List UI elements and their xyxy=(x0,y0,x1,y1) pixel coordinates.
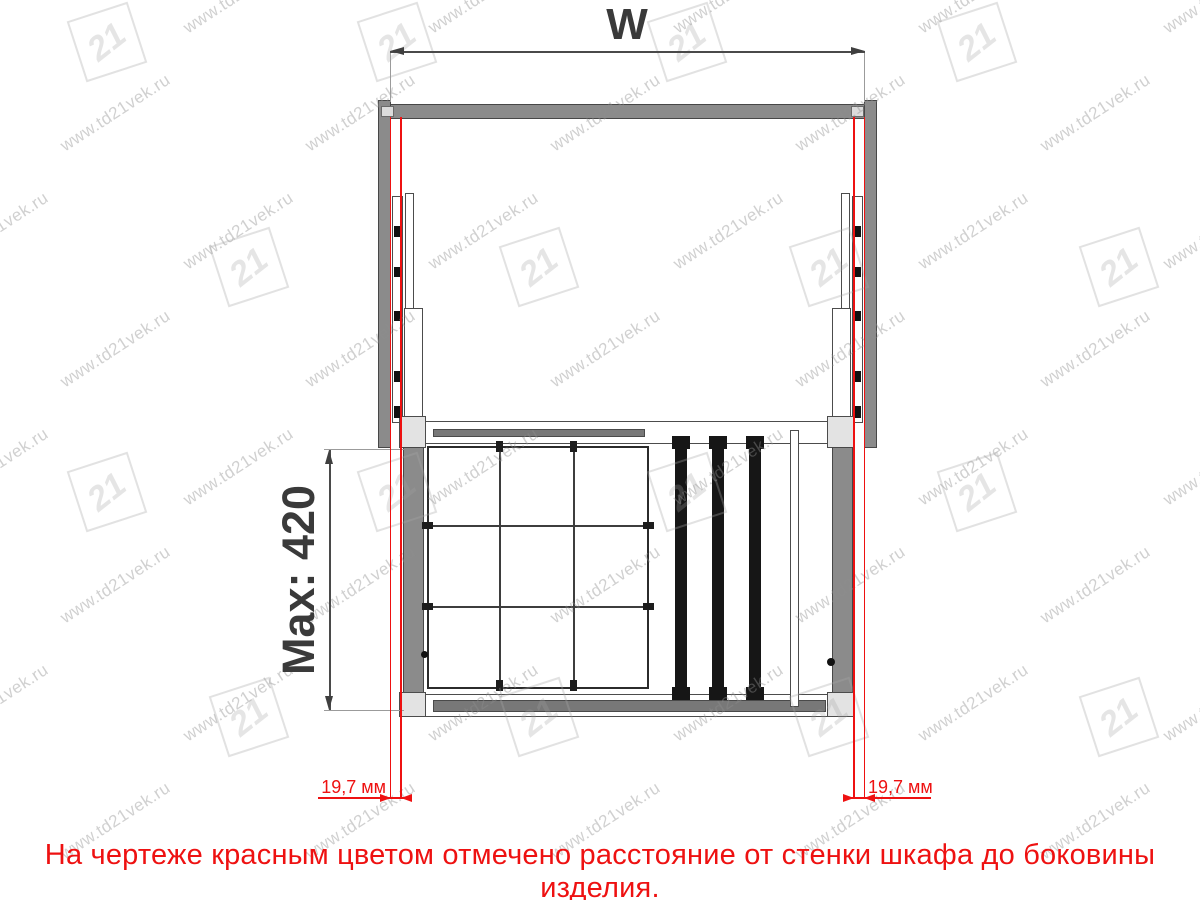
watermark-text: www.td21vek.ru xyxy=(670,188,787,274)
hanger-bar-2-bottom-cap xyxy=(709,687,727,700)
depth-dim-arrow-top xyxy=(325,450,333,464)
left-slide-inner-rail xyxy=(405,193,414,309)
watermark-text: www.td21vek.ru xyxy=(180,188,297,274)
basket-grid-hline xyxy=(429,525,647,527)
width-extension-line-left xyxy=(390,52,391,102)
basket-frame xyxy=(427,446,649,689)
cabinet-right-wall xyxy=(864,100,877,448)
right-panel-top-cap xyxy=(827,416,854,448)
watermark-text: www.td21vek.ru xyxy=(1160,0,1200,38)
width-extension-line-right xyxy=(864,52,865,102)
frame-back-rail-bar xyxy=(433,429,645,437)
right-slide-clip xyxy=(854,371,861,382)
hanger-bar-1-bottom-cap xyxy=(672,687,690,700)
basket-grid-vline xyxy=(499,448,501,687)
watermark-logo: 21 xyxy=(937,452,1018,533)
watermark-logo: 21 xyxy=(789,677,870,758)
clearance-line-left-inner xyxy=(400,117,402,799)
watermark-text: www.td21vek.ru xyxy=(57,542,174,628)
watermark-text: www.td21vek.ru xyxy=(0,660,52,746)
frame-front-rail-bar xyxy=(433,700,826,712)
note-text: На чертеже красным цветом отмечено расст… xyxy=(0,839,1200,900)
right-slide-clip xyxy=(854,226,861,237)
watermark-logo: 21 xyxy=(209,227,290,308)
watermark-text: www.td21vek.ru xyxy=(57,70,174,156)
watermark-logo: 21 xyxy=(1079,227,1160,308)
watermark-text: www.td21vek.ru xyxy=(0,424,52,510)
watermark-logo: 21 xyxy=(67,2,148,83)
watermark-logo: 21 xyxy=(499,227,580,308)
basket-wire-nub xyxy=(422,603,433,610)
basket-wire-nub xyxy=(570,441,577,452)
width-dim-arrow-left xyxy=(390,47,404,55)
basket-wire-nub xyxy=(422,522,433,529)
right-slide-clip xyxy=(854,311,861,321)
depth-extension-line-top xyxy=(324,449,404,450)
hanger-bar-1 xyxy=(675,436,687,700)
clearance-line-left-outer xyxy=(390,117,392,799)
watermark-text: www.td21vek.ru xyxy=(915,660,1032,746)
right-panel-bottom-cap xyxy=(827,692,854,717)
watermark-logo: 21 xyxy=(937,2,1018,83)
cabinet-corner-notch-left xyxy=(381,106,394,117)
right-slide-clip xyxy=(854,267,861,277)
left-panel-pin xyxy=(421,651,428,658)
watermark-text: www.td21vek.ru xyxy=(915,424,1032,510)
watermark-text: www.td21vek.ru xyxy=(1160,188,1200,274)
watermark-text: www.td21vek.ru xyxy=(915,0,1032,38)
hanger-bar-2-top-cap xyxy=(709,436,727,449)
cabinet-back-wall xyxy=(378,104,877,119)
watermark-text: www.td21vek.ru xyxy=(0,188,52,274)
watermark-text: www.td21vek.ru xyxy=(547,306,664,392)
basket-wire-nub xyxy=(496,680,503,691)
basket-grid-vline xyxy=(573,448,575,687)
width-dimension-line xyxy=(390,51,865,53)
width-dimension-label: W xyxy=(557,0,697,50)
divider-rod xyxy=(790,430,799,707)
watermark-text: www.td21vek.ru xyxy=(1037,542,1154,628)
right-slide-inner-rail xyxy=(841,193,850,309)
basket-wire-nub xyxy=(643,603,654,610)
clearance-line-right-inner xyxy=(853,117,855,799)
left-slide-bracket xyxy=(404,308,423,421)
basket-wire-nub xyxy=(496,441,503,452)
watermark-logo: 21 xyxy=(209,677,290,758)
clearance-label-left: 19,7 мм xyxy=(300,777,386,798)
depth-extension-line-bottom xyxy=(324,710,404,711)
hanger-bar-2 xyxy=(712,436,724,700)
technical-drawing-page: www.td21vek.ruwww.td21vek.ruwww.td21vek.… xyxy=(0,0,1200,900)
watermark-text: www.td21vek.ru xyxy=(915,188,1032,274)
watermark-text: www.td21vek.ru xyxy=(1037,306,1154,392)
depth-dimension-label: Max: 420 xyxy=(273,485,325,675)
left-panel-top-cap xyxy=(399,416,426,448)
left-panel-bottom-cap xyxy=(399,692,426,717)
clearance-arrow-right-a xyxy=(843,794,854,802)
right-slide-bracket xyxy=(832,308,851,421)
watermark-text: www.td21vek.ru xyxy=(1160,424,1200,510)
clearance-line-right-outer xyxy=(864,117,866,799)
watermark-text: www.td21vek.ru xyxy=(1160,660,1200,746)
hanger-bar-3 xyxy=(749,436,761,700)
watermark-logo: 21 xyxy=(1079,677,1160,758)
right-side-panel xyxy=(832,447,853,693)
watermark-text: www.td21vek.ru xyxy=(180,0,297,38)
depth-dim-arrow-bottom xyxy=(325,696,333,710)
basket-wire-nub xyxy=(643,522,654,529)
hanger-bar-3-top-cap xyxy=(746,436,764,449)
right-slide-clip xyxy=(854,406,861,418)
basket-wire-nub xyxy=(570,680,577,691)
clearance-label-right: 19,7 мм xyxy=(868,777,958,798)
watermark-text: www.td21vek.ru xyxy=(57,306,174,392)
watermark-logo: 21 xyxy=(67,452,148,533)
hanger-bar-1-top-cap xyxy=(672,436,690,449)
clearance-arrow-left-b xyxy=(401,794,412,802)
watermark-logo: 21 xyxy=(357,452,438,533)
hanger-bar-3-bottom-cap xyxy=(746,687,764,700)
watermark-text: www.td21vek.ru xyxy=(1037,70,1154,156)
watermark-logo: 21 xyxy=(357,2,438,83)
basket-grid-hline xyxy=(429,606,647,608)
right-panel-pin xyxy=(827,658,835,666)
depth-dimension-line xyxy=(329,450,331,710)
watermark-text: www.td21vek.ru xyxy=(0,0,52,38)
cabinet-corner-notch-right xyxy=(851,106,864,117)
watermark-text: www.td21vek.ru xyxy=(425,0,542,38)
watermark-text: www.td21vek.ru xyxy=(425,188,542,274)
width-dim-arrow-right xyxy=(851,47,865,55)
